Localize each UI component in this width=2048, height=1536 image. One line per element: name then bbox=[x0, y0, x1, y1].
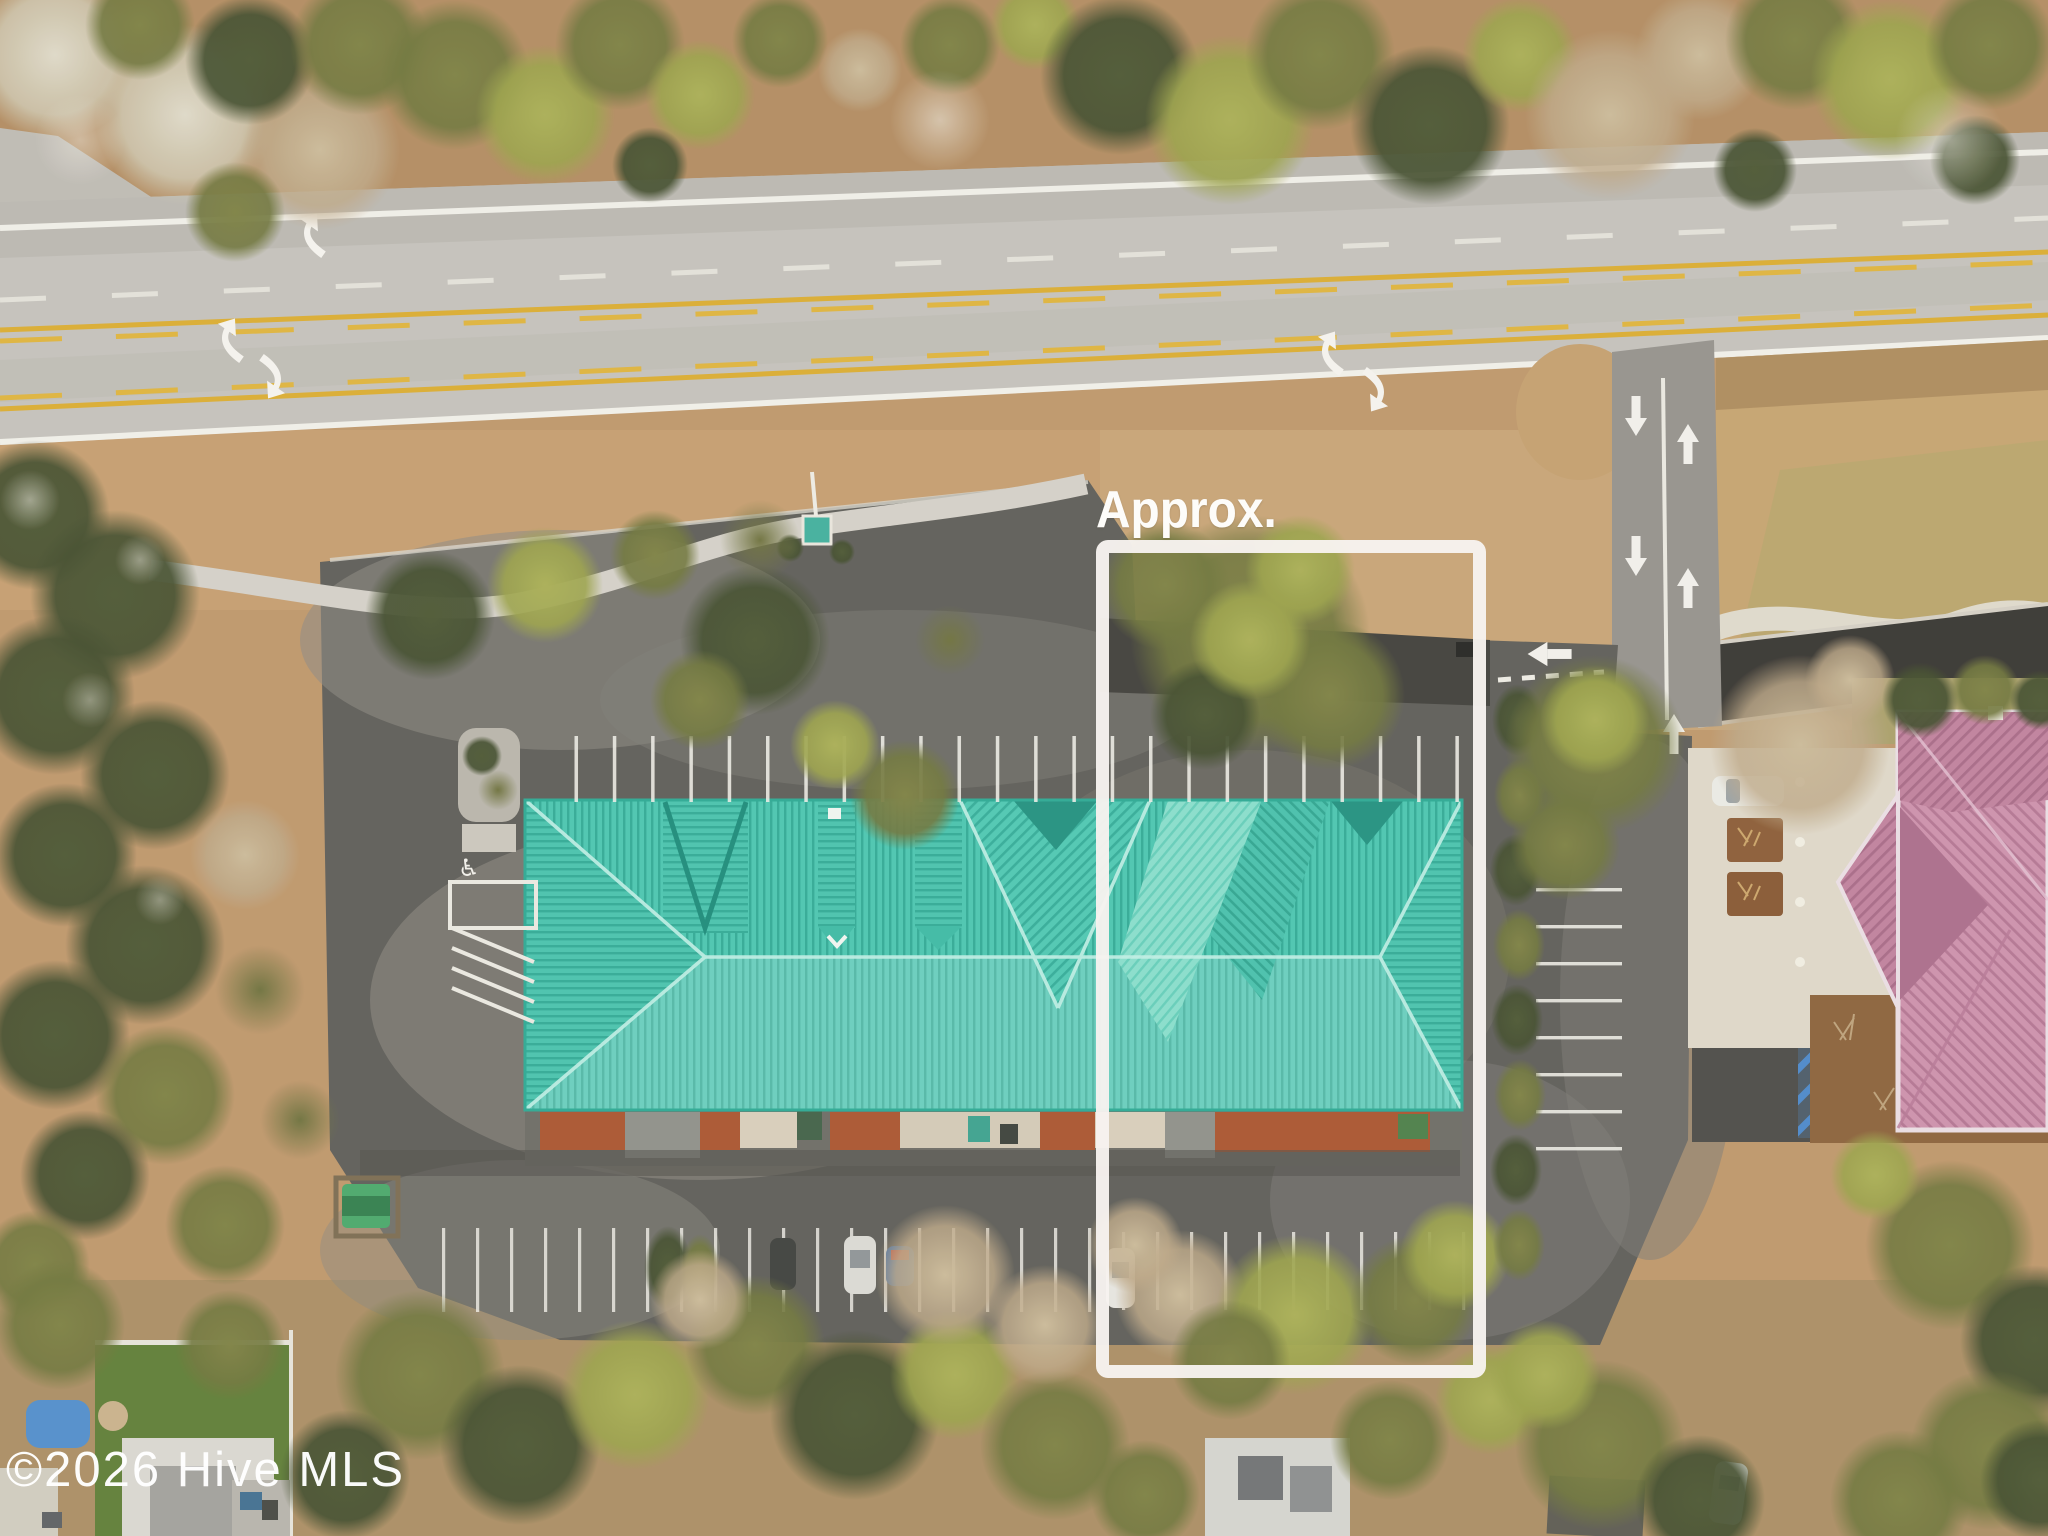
haze-overlay bbox=[0, 0, 2048, 1536]
approx-label: Approx. bbox=[1096, 480, 1464, 540]
mls-watermark: ©2026 Hive MLS bbox=[6, 1442, 405, 1498]
property-boundary-outline bbox=[1096, 540, 1486, 1378]
photo-artwork: ♿ bbox=[0, 0, 2048, 1536]
aerial-photo: ♿ bbox=[0, 0, 2048, 1536]
